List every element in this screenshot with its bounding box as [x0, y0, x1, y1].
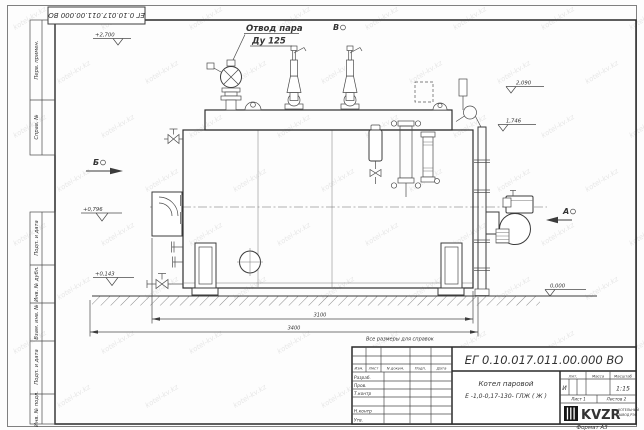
- title-doc-number: ЕГ 0.10.017.011.00.000 ВО: [465, 353, 624, 367]
- view-a-label: А: [562, 207, 569, 216]
- steam-outlet-leader: [233, 35, 245, 61]
- scale-header: Масштаб: [614, 373, 633, 378]
- mass-header: Масса: [592, 373, 605, 378]
- side-label-perv-primen: Перв. примен.: [34, 41, 40, 80]
- elevation-plus-2700: +2,700: [93, 33, 131, 46]
- format-note: Формат А3: [576, 425, 608, 430]
- watermark-text: kotel-kv.kz: [56, 275, 92, 302]
- logo-sub-line2: ЗАВОД РЭП: [618, 413, 638, 417]
- sheets-total: Листов 2: [606, 396, 627, 401]
- doc-number-rotated: ЕГ 0.10.017.011.00.000 ВО: [48, 11, 145, 19]
- product-name-line1: Котел паровой: [479, 380, 534, 388]
- watermark-text: kotel-kv.kz: [276, 113, 312, 140]
- col-izm: Изм.: [355, 366, 364, 371]
- scale-value: 1:15: [616, 386, 630, 393]
- elevation-2090-value: 2,090: [516, 81, 532, 87]
- burner-assembly: [486, 191, 533, 245]
- watermark-text: kotel-kv.kz: [188, 5, 224, 32]
- steam-outlet-label-line2: Ду 125: [251, 37, 286, 47]
- watermark-text: kotel-kv.kz: [540, 113, 576, 140]
- lifting-lug-left: [245, 102, 261, 110]
- watermark-text: kotel-kv.kz: [364, 221, 400, 248]
- side-label-podp-data-2: Подп. и дата: [34, 349, 40, 384]
- ground-line: [92, 296, 597, 306]
- watermark-text: kotel-kv.kz: [276, 221, 312, 248]
- rear-downcomer-pipe: [474, 127, 490, 296]
- watermark-text: kotel-kv.kz: [452, 113, 488, 140]
- watermark-text: kotel-kv.kz: [232, 167, 268, 194]
- row-razrab: Разраб.: [354, 375, 371, 381]
- steam-outlet-label-line1: Отвод пара: [246, 24, 303, 34]
- elevation-0000: 0,000: [545, 284, 586, 297]
- safety-valve-2: [341, 46, 362, 109]
- watermark-text: kotel-kv.kz: [364, 5, 400, 32]
- view-v-label: В: [333, 23, 339, 32]
- watermark-text: kotel-kv.kz: [56, 383, 92, 410]
- watermark-text: kotel-kv.kz: [188, 113, 224, 140]
- watermark-text: kotel-kv.kz: [144, 383, 180, 410]
- row-tkontr: Т.контр: [354, 391, 372, 397]
- watermark-text: kotel-kv.kz: [320, 383, 356, 410]
- left-wall-nozzles: [172, 242, 184, 268]
- side-label-inv-podl: Инв. № подл.: [34, 391, 40, 427]
- elevation-plus-0796-value: +0,796: [83, 207, 103, 213]
- product-name-line2: Е -1,0-0,17-130- ГЛЖ ( Ж ): [465, 393, 547, 400]
- support-leg-left: [192, 243, 218, 295]
- elevation-plus-2700-value: +2,700: [95, 33, 115, 39]
- dimension-inner-value: 3100: [314, 313, 327, 319]
- side-label-vzam-inv: Взам. инв. №: [34, 304, 40, 339]
- watermark-text: kotel-kv.kz: [188, 329, 224, 356]
- elevation-2090: 2,090: [506, 81, 544, 94]
- row-utv: Утв.: [354, 418, 363, 424]
- watermark-text: kotel-kv.kz: [144, 59, 180, 86]
- side-label-sprav-no: Справ. №: [34, 114, 40, 139]
- elevation-1746-value: 1,746: [506, 119, 522, 125]
- top-doc-number-box: ЕГ 0.10.017.011.00.000 ВО: [48, 7, 145, 24]
- phantom-outline: [415, 82, 433, 102]
- view-b-label: Б: [93, 158, 99, 167]
- elevation-plus-0143-value: +0,143: [95, 272, 115, 278]
- col-data: Дата: [436, 366, 448, 371]
- watermark-text: kotel-kv.kz: [584, 167, 620, 194]
- elevation-plus-0796: +0,796: [81, 207, 122, 221]
- logo-text: KVZR: [581, 408, 621, 423]
- lit-header: Лит.: [568, 373, 578, 378]
- water-gauge-column: [391, 121, 420, 197]
- reference-note: Все размеры для справок: [366, 337, 434, 343]
- logo-sub-line1: КОТЕЛЬНЫЙ: [618, 407, 640, 412]
- col-list: Лист: [368, 366, 379, 371]
- safety-valve-1: [285, 46, 306, 109]
- view-marker-v: В: [333, 23, 345, 32]
- watermark-text: kotel-kv.kz: [232, 383, 268, 410]
- watermark-text: kotel-kv.kz: [540, 5, 576, 32]
- watermark-text: kotel-kv.kz: [320, 167, 356, 194]
- watermark-text: kotel-kv.kz: [584, 275, 620, 302]
- side-label-inv-dubl: Инв. № дубл.: [34, 266, 40, 302]
- elevation-0000-value: 0,000: [550, 284, 566, 290]
- row-prov: Пров.: [354, 383, 367, 389]
- drawing-sheet: kotel-kv.kzkotel-kv.kzkotel-kv.kzkotel-k…: [0, 0, 644, 430]
- watermark-text: kotel-kv.kz: [276, 329, 312, 356]
- sheet-number: Лист 1: [570, 396, 586, 401]
- watermark-text: kotel-kv.kz: [496, 167, 532, 194]
- watermark-text: kotel-kv.kz: [100, 113, 136, 140]
- watermark-text: kotel-kv.kz: [56, 59, 92, 86]
- col-n-dokum: N докум.: [387, 366, 405, 371]
- title-block: Изм. Лист N докум. Подп. Дата Разраб. Пр…: [352, 347, 640, 424]
- side-label-podp-data-1: Подп. и дата: [34, 220, 40, 255]
- manhole: [237, 248, 263, 276]
- watermark-text: kotel-kv.kz: [100, 221, 136, 248]
- support-leg-right: [438, 243, 464, 295]
- col-podp: Подп.: [415, 366, 427, 371]
- steam-outlet-valve: [207, 60, 242, 110]
- lifting-lug-right: [433, 103, 447, 110]
- elevation-1746: 1,746: [498, 119, 536, 132]
- row-nkontr: Н.контр: [354, 409, 372, 415]
- watermark-text: kotel-kv.kz: [540, 221, 576, 248]
- elevation-plus-0143: +0,143: [93, 272, 134, 286]
- watermark-text: kotel-kv.kz: [452, 5, 488, 32]
- level-probe: [459, 79, 467, 110]
- boiler-drawing-canvas: kotel-kv.kzkotel-kv.kzkotel-kv.kzkotel-k…: [0, 0, 644, 430]
- watermark-text: kotel-kv.kz: [100, 329, 136, 356]
- lit-value: И: [562, 385, 567, 392]
- feed-elbow-box: [152, 192, 183, 236]
- upper-left-tap: [164, 129, 183, 144]
- view-marker-b: Б: [86, 158, 123, 174]
- dimension-overall-value: 3400: [288, 326, 301, 332]
- watermark-text: kotel-kv.kz: [144, 167, 180, 194]
- watermark-text: kotel-kv.kz: [584, 59, 620, 86]
- sample-cooler: [369, 125, 382, 184]
